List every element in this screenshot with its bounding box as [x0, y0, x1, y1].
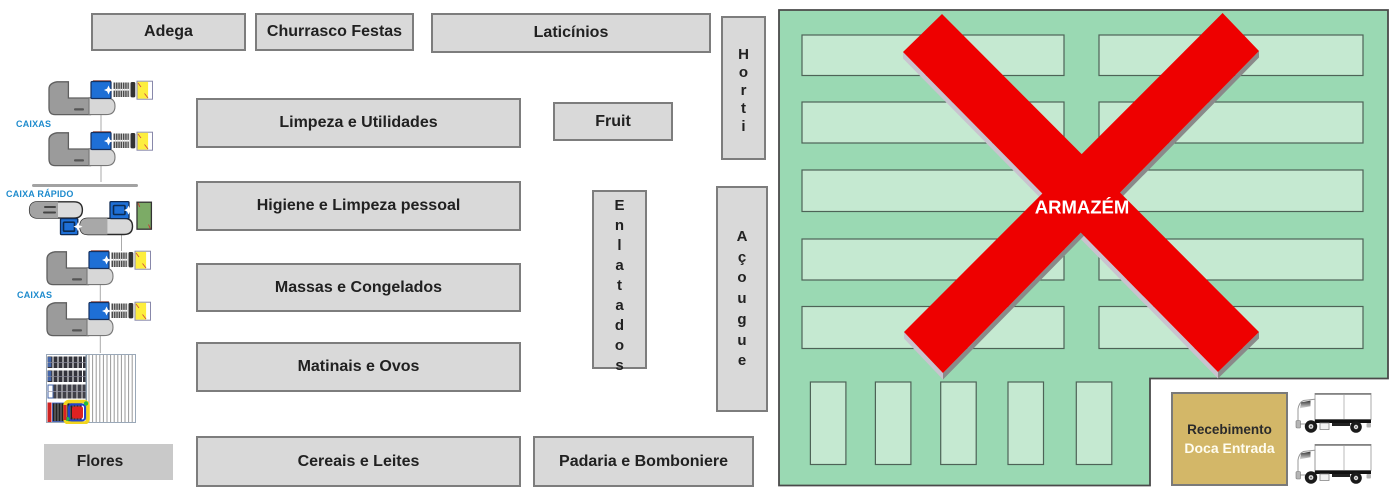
- svg-text:ARMAZÉM: ARMAZÉM: [1035, 197, 1130, 218]
